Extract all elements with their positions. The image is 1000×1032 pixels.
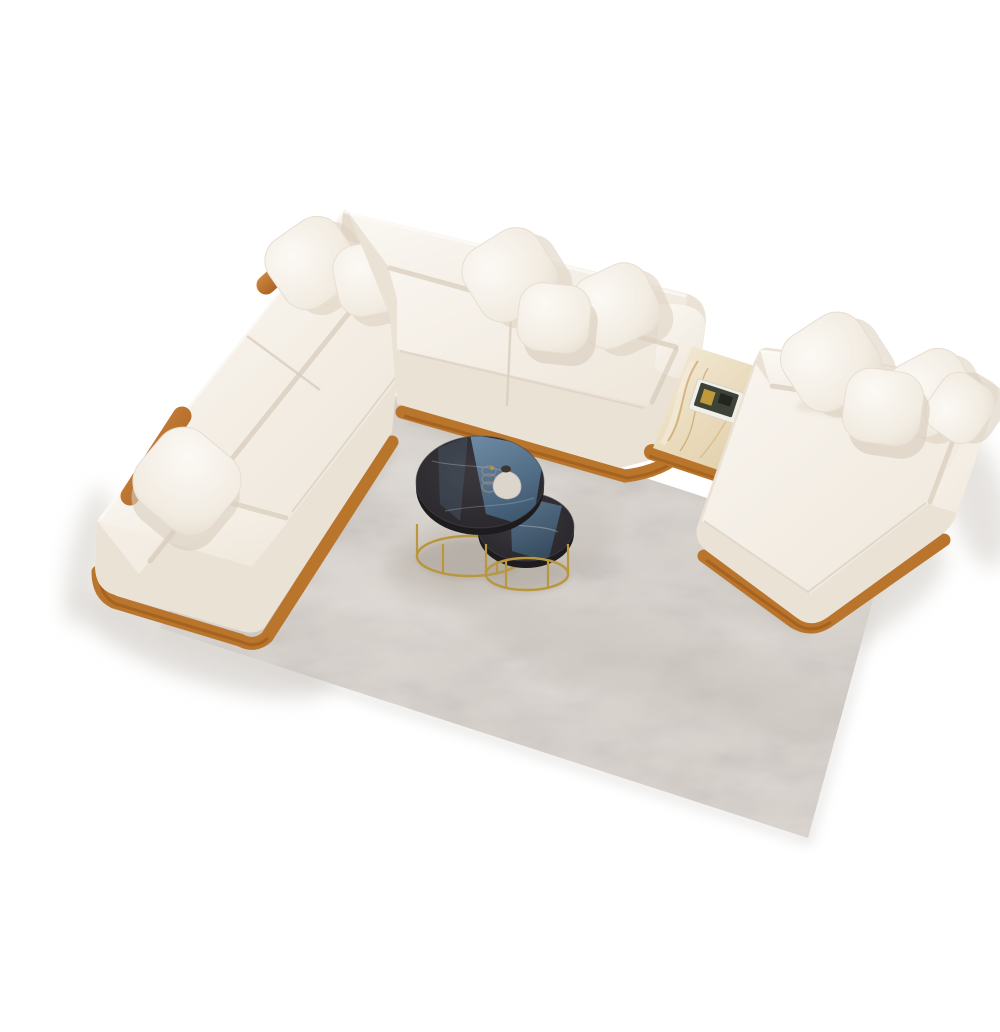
pillow-face — [515, 280, 594, 355]
wire-bead — [490, 466, 494, 470]
chaise-section — [696, 297, 1000, 630]
vase-mouth — [501, 466, 511, 473]
render-canvas — [40, 16, 1000, 1016]
pillow-face — [839, 365, 927, 449]
large-coffee-table — [416, 434, 545, 535]
living-room-render: Top-down 3D render of a cream modular se… — [40, 16, 1000, 1016]
